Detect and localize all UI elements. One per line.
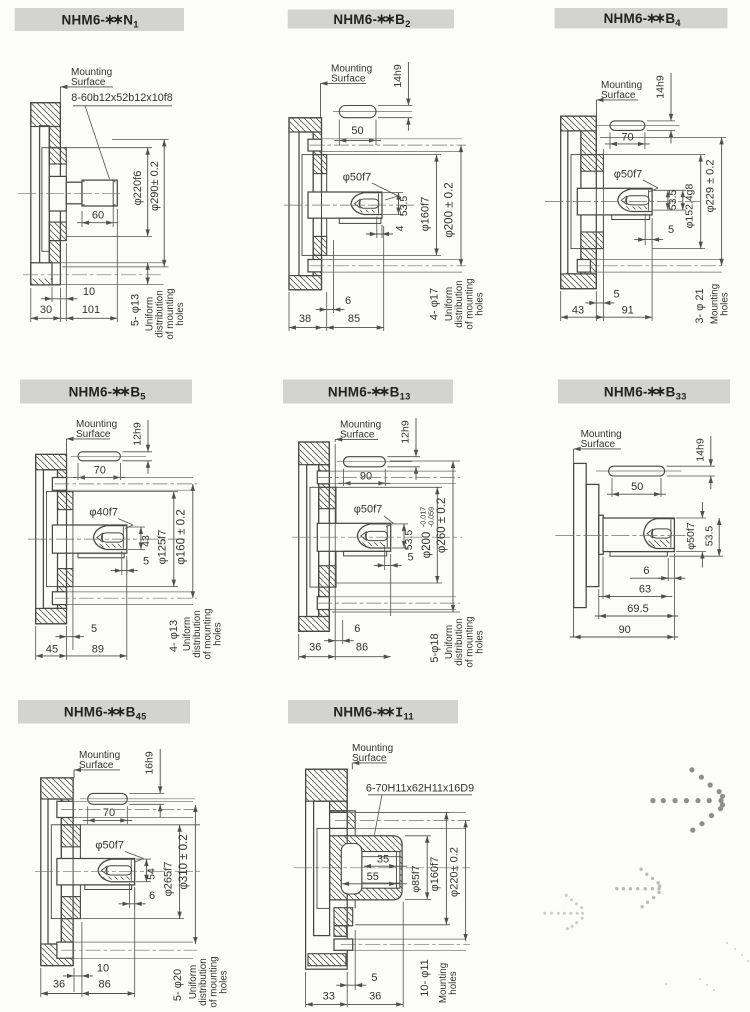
svg-text:φ265f7: φ265f7 [162, 862, 174, 897]
svg-text:6-70H11x62H11x16D9: 6-70H11x62H11x16D9 [366, 783, 474, 795]
svg-text:86: 86 [356, 642, 368, 654]
svg-text:90: 90 [360, 471, 372, 483]
svg-text:50: 50 [631, 481, 643, 493]
svg-text:10- φ11: 10- φ11 [419, 959, 431, 997]
svg-text:70: 70 [94, 465, 106, 477]
svg-text:36: 36 [309, 642, 321, 654]
svg-text:φ50f7: φ50f7 [95, 839, 124, 851]
svg-text:6: 6 [643, 565, 649, 577]
svg-text:φ50f7: φ50f7 [685, 522, 697, 549]
svg-text:5- φ13: 5- φ13 [130, 294, 142, 326]
svg-text:30: 30 [40, 304, 52, 316]
svg-text:5- φ20: 5- φ20 [172, 969, 184, 1001]
svg-text:60: 60 [92, 210, 104, 222]
svg-text:45: 45 [46, 644, 58, 656]
svg-text:69.5: 69.5 [627, 603, 648, 615]
svg-text:5: 5 [613, 289, 619, 301]
svg-text:89: 89 [92, 644, 104, 656]
svg-text:101: 101 [82, 304, 100, 316]
svg-text:φ290± 0.2: φ290± 0.2 [149, 161, 161, 211]
svg-text:53.5: 53.5 [704, 526, 716, 547]
svg-text:86: 86 [98, 979, 110, 991]
svg-text:φ50f7: φ50f7 [614, 169, 643, 181]
svg-text:φ40f7: φ40f7 [89, 507, 118, 519]
svg-text:φ160 ± 0.2: φ160 ± 0.2 [175, 509, 187, 564]
svg-text:φ220± 0.2: φ220± 0.2 [448, 847, 460, 897]
svg-text:φ160f7: φ160f7 [429, 857, 441, 892]
svg-text:5: 5 [91, 623, 97, 635]
svg-text:φ220f6: φ220f6 [132, 171, 144, 206]
svg-text:holes: holes [219, 970, 230, 994]
svg-text:φ50f7: φ50f7 [343, 172, 372, 184]
svg-text:-0.059: -0.059 [427, 507, 436, 527]
svg-text:holes: holes [175, 302, 186, 326]
svg-text:14h9: 14h9 [655, 75, 667, 99]
svg-text:φ200: φ200 [421, 532, 433, 559]
svg-text:5: 5 [668, 224, 674, 236]
svg-text:φ260 ± 0.2: φ260 ± 0.2 [436, 498, 448, 553]
svg-text:φ152.4g8: φ152.4g8 [684, 183, 696, 228]
svg-text:91: 91 [622, 305, 634, 317]
svg-text:6: 6 [345, 295, 351, 307]
svg-text:4- φ13: 4- φ13 [168, 620, 180, 652]
svg-text:φ310 ± 0.2: φ310 ± 0.2 [178, 834, 190, 889]
svg-text:16h9: 16h9 [144, 751, 156, 775]
svg-text:12h9: 12h9 [400, 420, 412, 444]
svg-text:14h9: 14h9 [392, 64, 404, 88]
svg-text:φ85f7: φ85f7 [410, 865, 422, 892]
svg-text:4: 4 [394, 225, 406, 231]
svg-text:holes: holes [475, 630, 486, 654]
svg-text:35: 35 [377, 853, 389, 865]
svg-text:6: 6 [354, 623, 360, 635]
svg-text:holes: holes [720, 292, 731, 316]
svg-text:4- φ17: 4- φ17 [429, 288, 441, 320]
svg-text:53.5: 53.5 [398, 196, 410, 217]
svg-text:8-60b12x52b12x10f8: 8-60b12x52b12x10f8 [71, 92, 172, 104]
svg-text:43: 43 [140, 535, 152, 547]
svg-text:10: 10 [83, 286, 95, 298]
svg-text:5: 5 [407, 552, 413, 564]
svg-text:33: 33 [323, 990, 335, 1002]
svg-text:6: 6 [149, 890, 155, 902]
svg-text:holes: holes [448, 971, 459, 995]
svg-text:90: 90 [619, 624, 631, 636]
svg-text:53.5: 53.5 [667, 190, 679, 211]
svg-text:63: 63 [639, 583, 651, 595]
svg-text:85: 85 [348, 313, 360, 325]
svg-text:12h9: 12h9 [132, 422, 144, 446]
svg-text:5-φ18: 5-φ18 [429, 633, 441, 662]
svg-text:36: 36 [53, 979, 65, 991]
svg-text:14h9: 14h9 [694, 438, 706, 462]
svg-text:54: 54 [146, 868, 158, 880]
svg-text:50: 50 [351, 125, 363, 137]
svg-text:φ125f7: φ125f7 [157, 530, 169, 565]
svg-text:38: 38 [299, 313, 311, 325]
svg-text:φ50f7: φ50f7 [354, 504, 383, 516]
svg-text:36: 36 [369, 990, 381, 1002]
svg-text:φ160f7: φ160f7 [420, 197, 432, 232]
svg-text:holes: holes [475, 292, 486, 316]
svg-text:3- φ 21: 3- φ 21 [694, 288, 706, 323]
svg-text:43: 43 [572, 305, 584, 317]
svg-text:55: 55 [367, 871, 379, 883]
svg-text:5: 5 [371, 972, 377, 984]
svg-text:φ229 ± 0.2: φ229 ± 0.2 [704, 160, 716, 213]
svg-text:φ200 ± 0.2: φ200 ± 0.2 [443, 182, 455, 237]
svg-text:10: 10 [97, 963, 109, 975]
svg-text:53.5: 53.5 [403, 530, 415, 551]
svg-text:5: 5 [143, 556, 149, 568]
svg-text:holes: holes [213, 622, 224, 646]
